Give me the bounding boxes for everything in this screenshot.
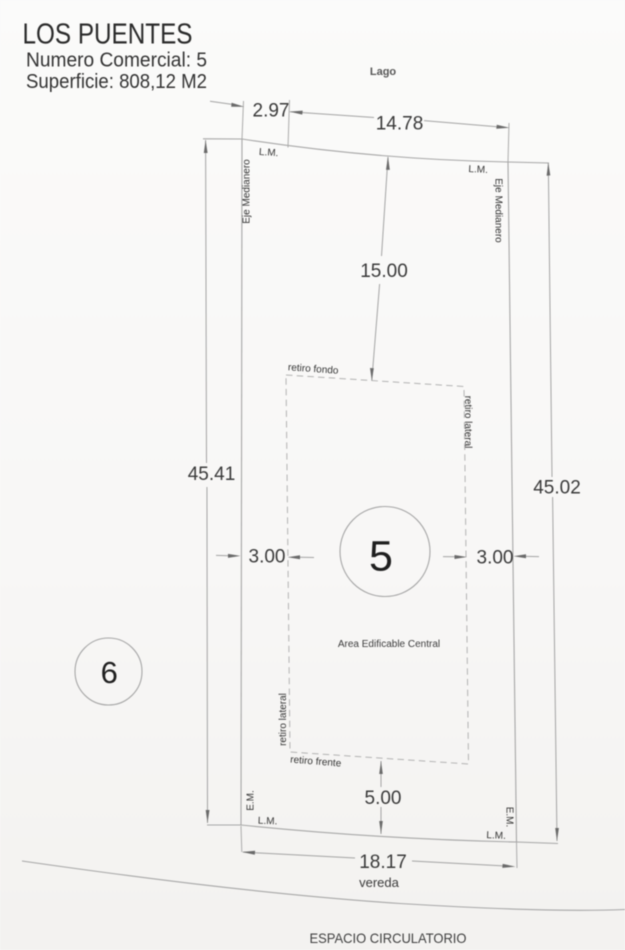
svg-text:6: 6 [101,655,118,690]
svg-text:retiro lateral: retiro lateral [278,693,289,746]
svg-text:Area Edificable Central: Area Edificable Central [338,639,440,650]
svg-text:2.97: 2.97 [253,101,290,122]
svg-text:18.17: 18.17 [359,852,407,873]
svg-text:retiro lateral: retiro lateral [462,396,473,449]
svg-text:Lago: Lago [370,66,397,78]
svg-text:14.78: 14.78 [376,114,424,135]
svg-text:5.00: 5.00 [365,788,402,809]
svg-text:3.00: 3.00 [477,548,514,569]
svg-text:45.02: 45.02 [533,478,581,499]
svg-text:ESPACIO CIRCULATORIO: ESPACIO CIRCULATORIO [310,930,467,946]
svg-text:L.M.: L.M. [468,164,488,176]
svg-text:15.00: 15.00 [360,261,408,282]
svg-text:5: 5 [369,532,393,580]
svg-text:E.M.: E.M. [504,807,515,828]
svg-text:L.M.: L.M. [259,147,279,159]
svg-text:Eje Medianero: Eje Medianero [493,178,504,243]
svg-text:L.M.: L.M. [486,830,506,842]
svg-text:L.M.: L.M. [258,816,278,828]
svg-text:LOS PUENTES: LOS PUENTES [23,19,193,51]
svg-text:Eje Medianero: Eje Medianero [242,159,253,224]
svg-text:45.41: 45.41 [188,464,236,485]
svg-text:E.M.: E.M. [246,790,257,811]
svg-text:vereda: vereda [359,875,400,890]
svg-text:Numero Comercial: 5: Numero Comercial: 5 [26,49,207,72]
svg-text:Superficie: 808,12 M2: Superficie: 808,12 M2 [26,70,207,93]
svg-text:3.00: 3.00 [249,547,286,568]
